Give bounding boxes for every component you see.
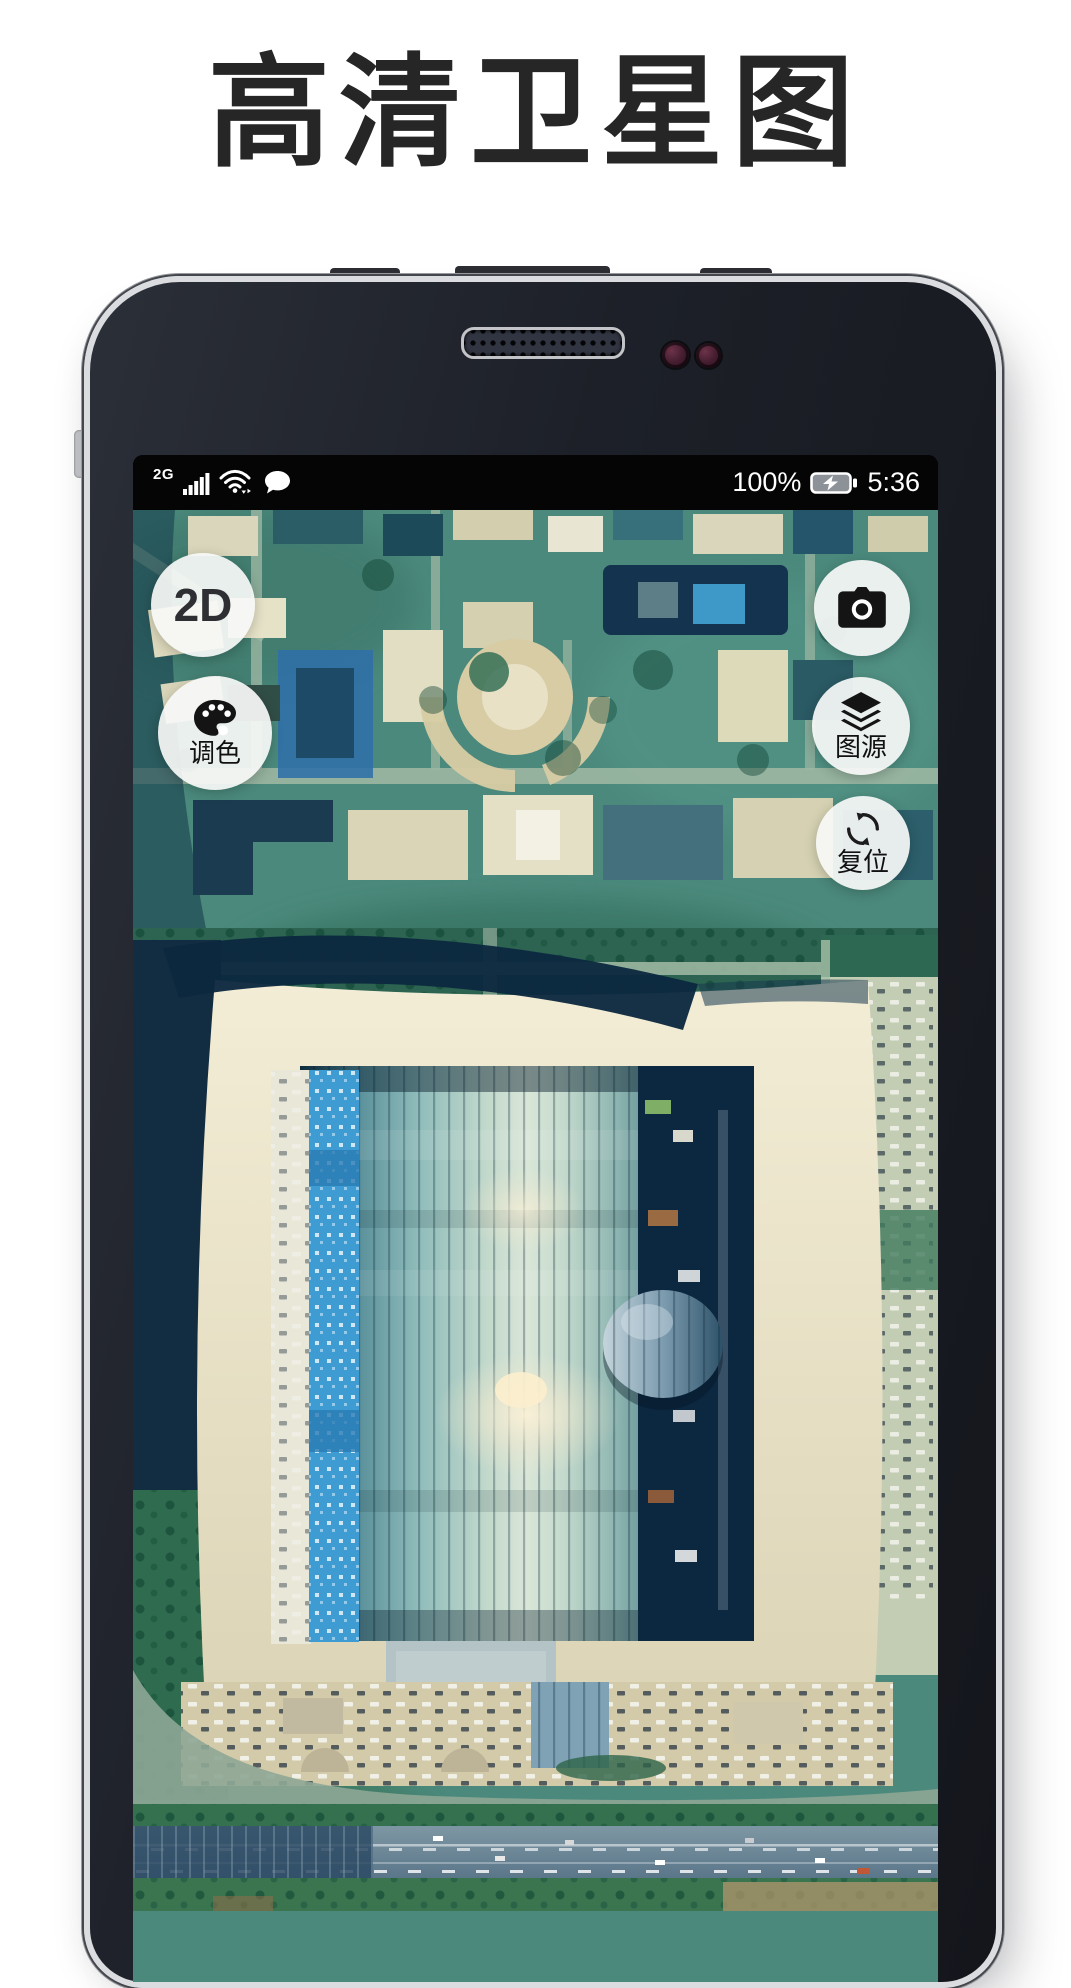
refresh-icon [842, 809, 884, 849]
south-plaza [181, 1682, 893, 1786]
network-type-label: 2G [153, 466, 174, 483]
earpiece-speaker [461, 327, 625, 359]
bottom-greenery [133, 1878, 938, 1911]
wifi-icon [219, 469, 255, 496]
reset-view-button[interactable]: 复位 [816, 796, 910, 890]
front-camera [662, 342, 689, 368]
phone-screen: 2G [133, 455, 938, 1982]
battery-percent: 100% [732, 467, 801, 498]
palette-button[interactable]: 调色 [158, 676, 272, 790]
map-2d-toggle-button[interactable]: 2D [151, 553, 255, 657]
page-title: 高清卫星图 [0, 44, 1071, 182]
palette-label: 调色 [189, 740, 241, 767]
stadium [163, 936, 883, 1723]
screenshot-camera-button[interactable] [814, 560, 910, 656]
reset-view-label: 复位 [837, 849, 889, 876]
clock: 5:36 [867, 467, 920, 498]
layers-icon [837, 690, 885, 734]
satellite-map[interactable]: 2D 调色 [133, 510, 938, 1982]
status-left: 2G [153, 469, 291, 496]
map-source-label: 图源 [835, 734, 887, 761]
camera-icon [836, 585, 888, 631]
phone-mockup: 2G [84, 276, 1002, 1988]
message-bubble-icon [264, 470, 291, 496]
status-bar: 2G [133, 455, 938, 510]
proximity-sensor [696, 343, 721, 368]
signal-bars-icon [183, 470, 210, 496]
palette-icon [192, 698, 238, 740]
status-right: 100% 5:36 [732, 467, 920, 498]
battery-charging-icon [810, 470, 858, 496]
map-source-button[interactable]: 图源 [812, 677, 910, 775]
map-2d-label: 2D [174, 581, 233, 629]
